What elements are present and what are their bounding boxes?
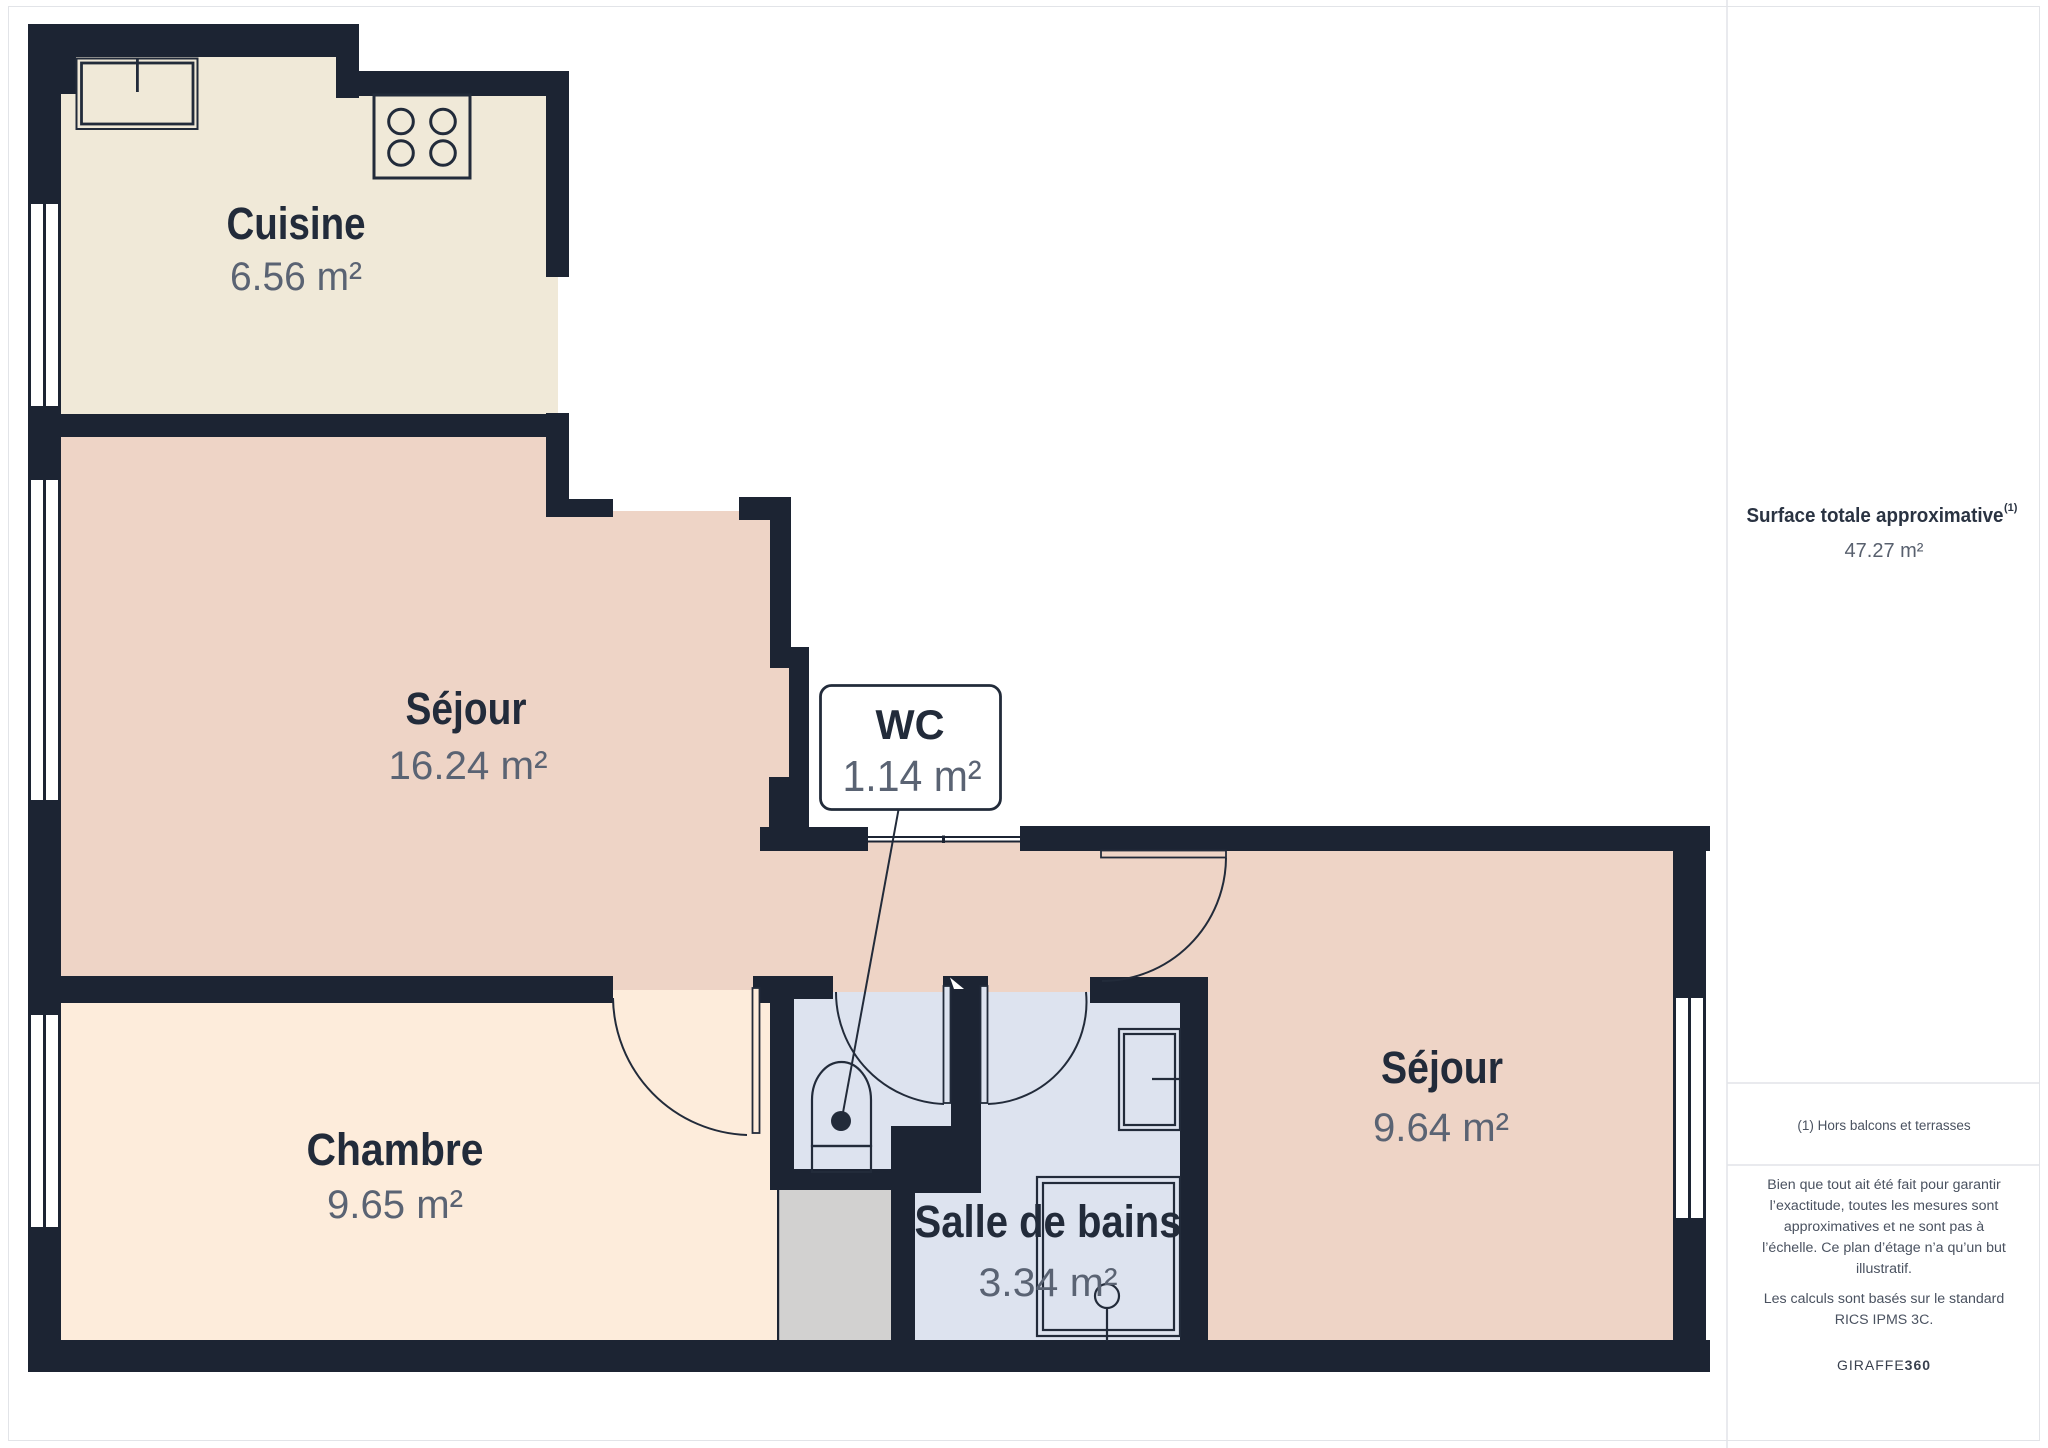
svg-text:Séjour: Séjour — [406, 683, 527, 734]
svg-text:Chambre: Chambre — [307, 1124, 484, 1175]
svg-text:Salle de bains: Salle de bains — [915, 1196, 1182, 1247]
svg-text:47.27 m²: 47.27 m² — [1845, 540, 1924, 562]
svg-text:Séjour: Séjour — [1381, 1042, 1503, 1093]
svg-text:Bien que tout ait été fait pou: Bien que tout ait été fait pour garantir — [1767, 1177, 2001, 1193]
svg-text:l’exactitude, toutes les mesur: l’exactitude, toutes les mesures sont — [1770, 1198, 1999, 1214]
svg-text:3.34 m²: 3.34 m² — [979, 1261, 1118, 1305]
svg-text:16.24 m²: 16.24 m² — [389, 744, 548, 788]
svg-text:approximatives et ne sont pas: approximatives et ne sont pas à — [1784, 1219, 1984, 1235]
svg-text:l’échelle. Ce plan d’étage n’a: l’échelle. Ce plan d’étage n’a qu’un but — [1762, 1240, 2006, 1256]
svg-text:(1) Hors balcons et terrasses: (1) Hors balcons et terrasses — [1797, 1118, 1971, 1133]
svg-text:WC: WC — [876, 701, 945, 748]
svg-text:illustratif.: illustratif. — [1856, 1261, 1912, 1277]
svg-text:1.14 m²: 1.14 m² — [843, 752, 982, 801]
svg-text:Cuisine: Cuisine — [227, 198, 366, 249]
svg-text:Les calculs sont basés sur le: Les calculs sont basés sur le standard — [1764, 1291, 2005, 1307]
svg-text:9.64 m²: 9.64 m² — [1373, 1106, 1509, 1150]
svg-text:(1): (1) — [2004, 502, 2018, 514]
svg-text:9.65 m²: 9.65 m² — [327, 1183, 463, 1227]
svg-text:6.56 m²: 6.56 m² — [230, 255, 362, 299]
svg-text:RICS IPMS 3C.: RICS IPMS 3C. — [1835, 1312, 1934, 1328]
svg-text:GIRAFFE360: GIRAFFE360 — [1837, 1357, 1931, 1373]
svg-text:Surface totale approximative: Surface totale approximative — [1747, 505, 2004, 527]
